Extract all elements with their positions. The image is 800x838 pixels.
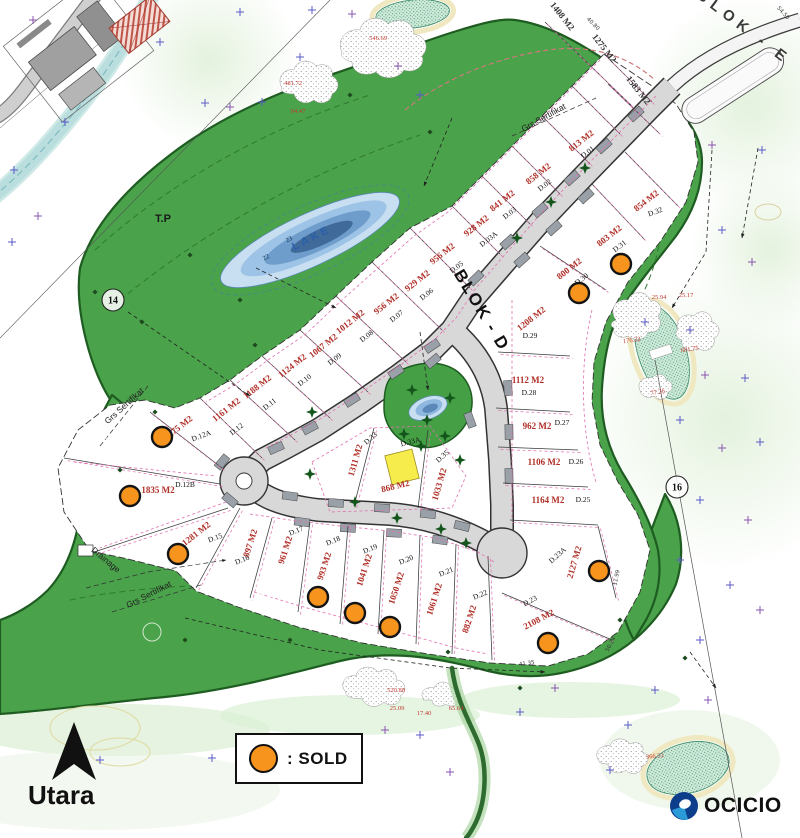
plot-area-label: 1112 M2 — [512, 375, 545, 385]
plot-id-label: D.27 — [555, 418, 570, 427]
survey-number: 65.64 — [449, 705, 464, 712]
plot-id-label: D.29 — [523, 331, 538, 340]
driveway-pad — [374, 504, 389, 513]
number-text: 14 — [108, 296, 118, 307]
driveway-pad — [386, 529, 401, 538]
brand-name: OCICIO — [704, 794, 782, 818]
sold-marker-D.31 — [611, 254, 631, 274]
sold-legend-label: : SOLD — [287, 749, 348, 769]
map-canvas: 813 M2D.01858 M2D.02841 M2D.03928 M2D.03… — [0, 0, 800, 838]
plot-id-label: D.12B — [175, 480, 195, 489]
compass: Utara — [24, 714, 134, 824]
driveway-pad — [328, 498, 344, 507]
label-t-p: T.P — [155, 213, 171, 225]
site-plan-map: 813 M2D.01858 M2D.02841 M2D.03928 M2D.03… — [0, 0, 800, 838]
plot-D.26: 1106 M2D.26 — [528, 457, 584, 467]
legend: : SOLD — [235, 733, 363, 784]
north-arrow-icon — [52, 722, 96, 780]
survey-number: 25.09 — [390, 705, 405, 712]
sold-marker-D.15 — [168, 544, 188, 564]
sold-marker-D.18 — [308, 587, 328, 607]
sold-marker-D.12A — [152, 427, 172, 447]
plot-area-label: 1835 M2 — [141, 485, 175, 495]
driveway-pad — [420, 509, 436, 519]
plot-area-label: 1164 M2 — [532, 495, 565, 505]
sold-marker-D.20 — [380, 617, 400, 637]
plot-area-label: 1106 M2 — [528, 457, 561, 467]
driveway-pad — [282, 491, 298, 501]
sold-marker-D.19 — [345, 603, 365, 623]
plot-id-label: D.26 — [569, 457, 584, 466]
survey-number: 94.47 — [291, 108, 306, 115]
survey-number: 17.40 — [417, 710, 432, 717]
plot-area-label: 962 M2 — [523, 421, 552, 431]
survey-number: 25.94 — [652, 294, 667, 301]
cul-de-sac-south — [477, 528, 527, 578]
number-text: 16 — [672, 483, 682, 494]
survey-number: 481.72 — [284, 80, 302, 87]
survey-number: 546.69 — [369, 35, 387, 42]
driveway-pad — [432, 535, 448, 545]
plot-id-label: D.28 — [522, 388, 537, 397]
ocicio-logo-icon — [668, 790, 700, 822]
plot-id-label: D.25 — [576, 495, 591, 504]
survey-number: 25.17 — [679, 292, 694, 299]
sold-marker-D.23 — [538, 633, 558, 653]
north-label: Utara — [28, 780, 94, 811]
sold-marker-D.12B — [120, 486, 140, 506]
brand-logo: OCICIO — [668, 790, 782, 822]
survey-number: 520.88 — [387, 687, 405, 694]
sold-legend-icon — [249, 744, 278, 773]
sold-marker-D.23A — [589, 561, 609, 581]
circled-number-14: 14 — [102, 289, 124, 311]
sold-marker-D.30 — [569, 283, 589, 303]
circled-number-16: 16 — [666, 476, 688, 498]
plot-D.25: 1164 M2D.25 — [532, 495, 591, 505]
